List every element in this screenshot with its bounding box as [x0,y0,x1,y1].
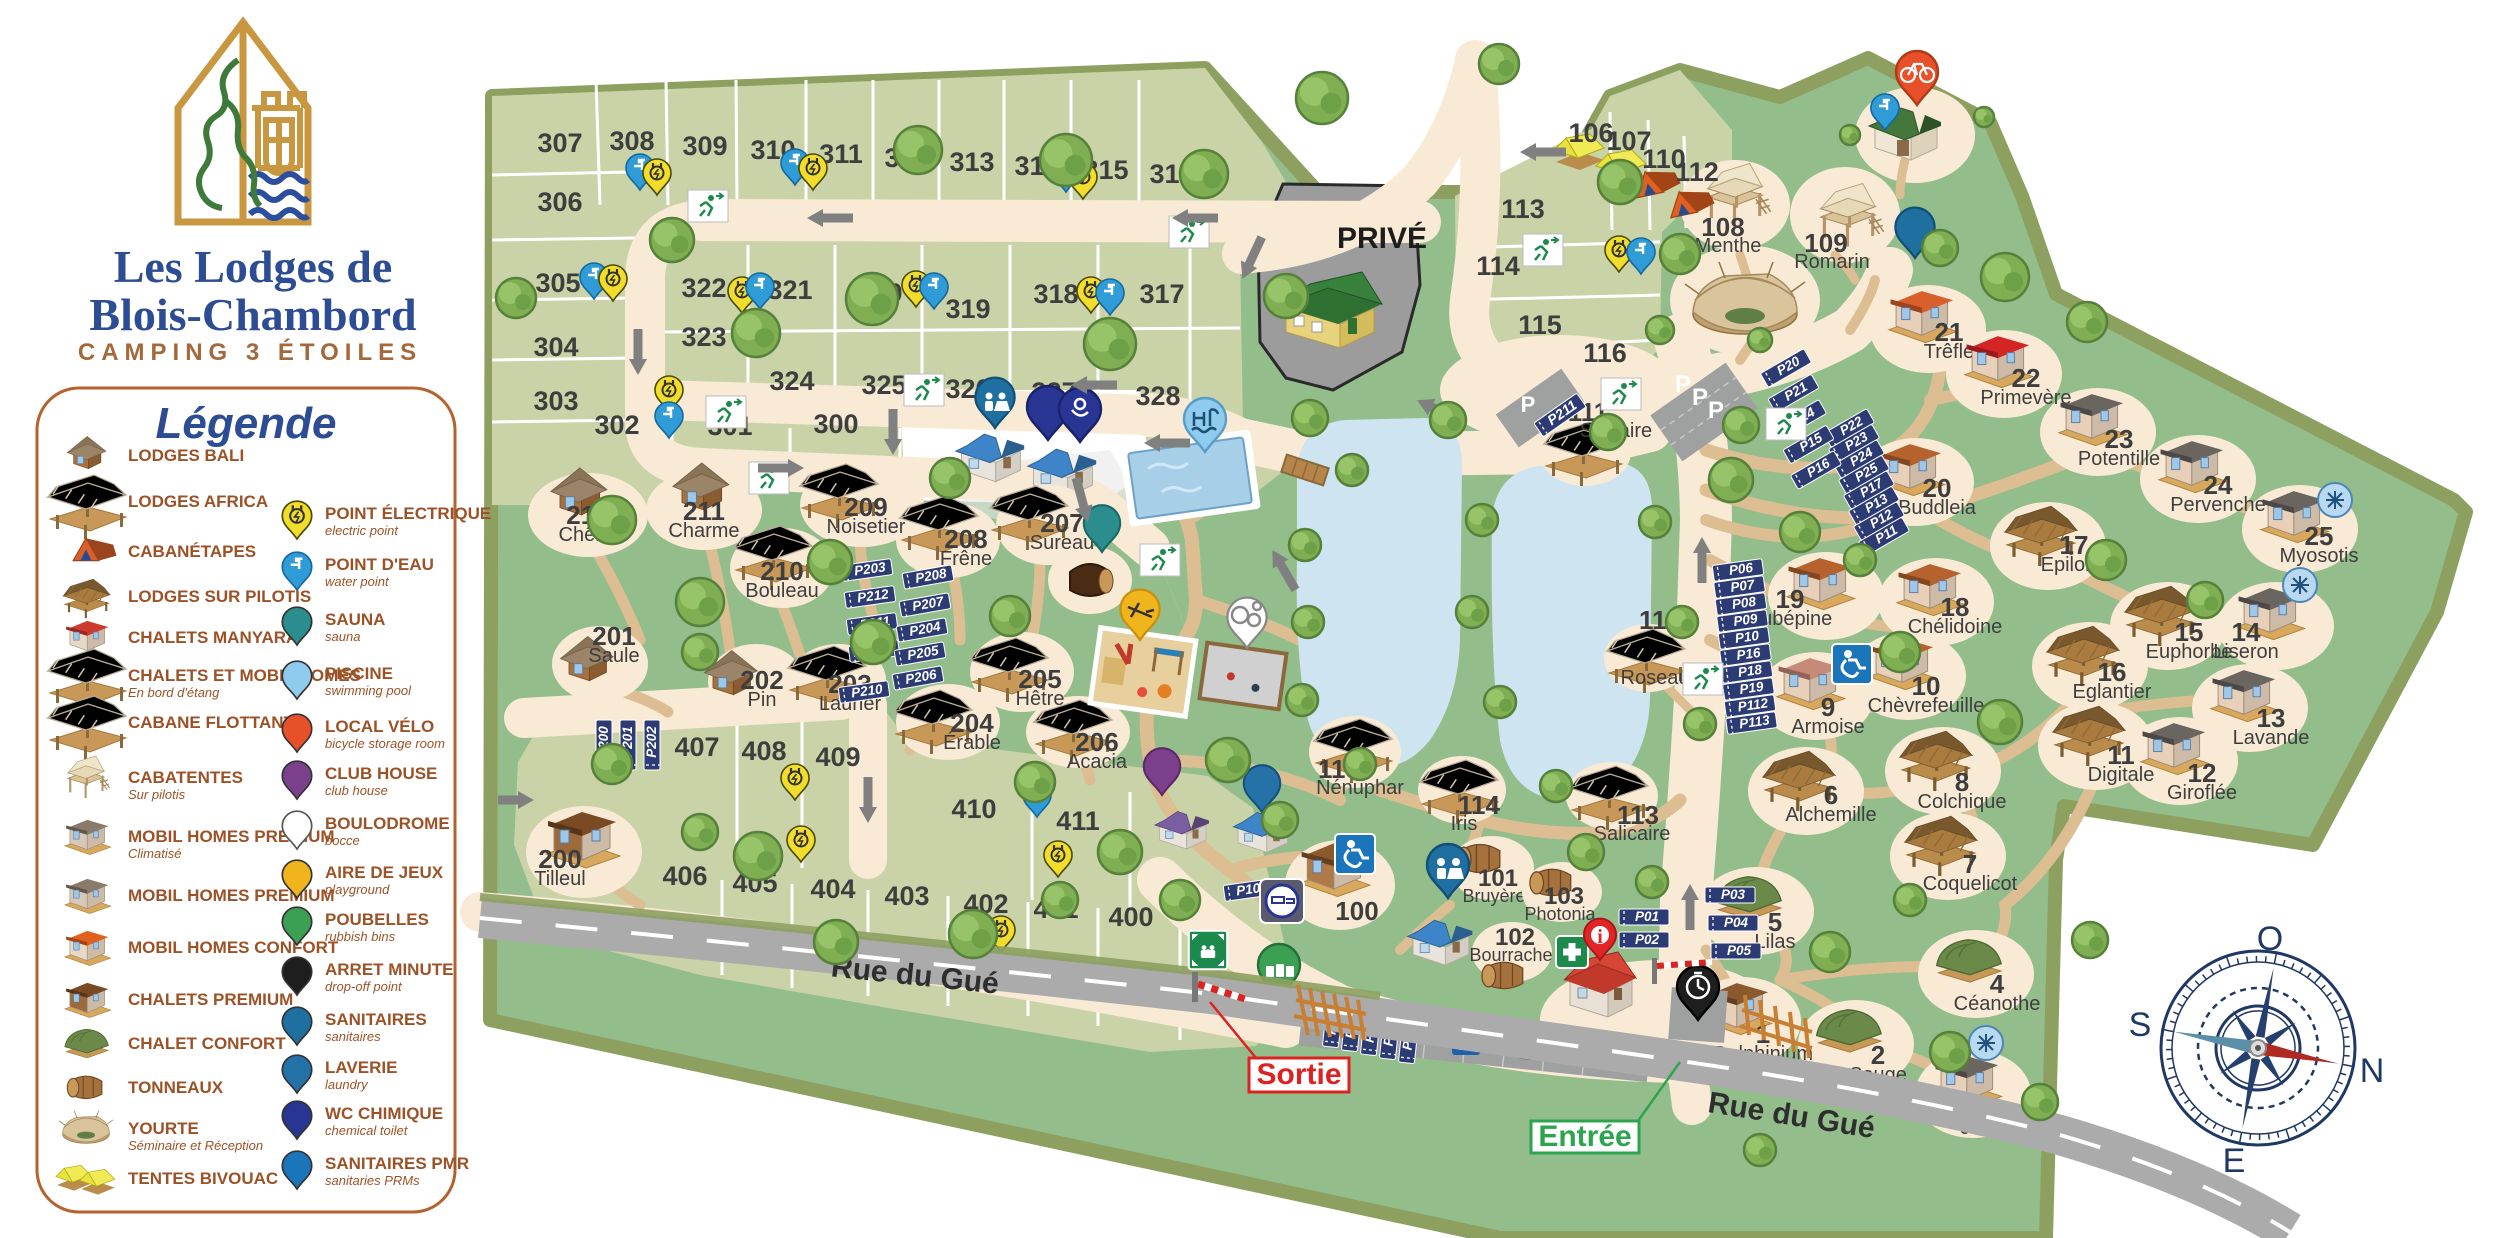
svg-text:LAVERIE: LAVERIE [325,1058,397,1077]
svg-text:CABATENTES: CABATENTES [128,768,243,787]
svg-text:Coquelicot: Coquelicot [1923,873,2018,895]
svg-text:PISCINE: PISCINE [325,664,393,683]
svg-text:309: 309 [682,131,727,161]
svg-text:Bruyère: Bruyère [1462,886,1525,906]
svg-text:Digitale: Digitale [2088,764,2155,786]
svg-text:Photonia: Photonia [1524,904,1596,924]
svg-text:chemical toilet: chemical toilet [325,1123,409,1138]
svg-text:114: 114 [1476,251,1520,281]
svg-text:302: 302 [594,410,639,440]
svg-text:CAMPING 3 ÉTOILES: CAMPING 3 ÉTOILES [78,338,422,366]
svg-text:bocce: bocce [325,833,360,848]
svg-text:Menthe: Menthe [1695,235,1762,257]
svg-text:POUBELLES: POUBELLES [325,910,429,929]
svg-text:BOULODROME: BOULODROME [325,814,450,833]
svg-text:WC CHIMIQUE: WC CHIMIQUE [325,1104,443,1123]
svg-text:CHALETS MANYARA: CHALETS MANYARA [128,628,298,647]
svg-text:LODGES AFRICA: LODGES AFRICA [128,492,268,511]
svg-text:Saule: Saule [588,645,639,667]
svg-text:115: 115 [1518,310,1562,340]
svg-text:P202: P202 [644,726,659,758]
svg-text:P05: P05 [1727,943,1752,958]
svg-text:308: 308 [609,126,654,156]
svg-text:324: 324 [769,366,814,396]
svg-text:Romarin: Romarin [1794,251,1870,273]
svg-text:sanitaries PRMs: sanitaries PRMs [325,1173,420,1188]
svg-text:SANITAIRES PMR: SANITAIRES PMR [325,1154,469,1173]
svg-text:Alchemille: Alchemille [1785,804,1876,826]
svg-text:Séminaire et Réception: Séminaire et Réception [128,1138,263,1153]
svg-text:AIRE DE JEUX: AIRE DE JEUX [325,863,444,882]
svg-text:Roseau: Roseau [1621,667,1690,689]
svg-text:P03: P03 [1721,887,1746,902]
svg-text:Blois-Chambord: Blois-Chambord [89,289,417,340]
svg-text:Salicaire: Salicaire [1594,823,1671,845]
svg-text:P: P [1675,371,1691,398]
svg-text:323: 323 [681,322,726,352]
svg-text:Bourrache: Bourrache [1469,945,1552,965]
svg-text:SAUNA: SAUNA [325,610,385,629]
svg-text:313: 313 [949,147,994,177]
svg-text:drop-off point: drop-off point [325,979,403,994]
svg-text:113: 113 [1501,194,1545,224]
svg-text:Chélidoine: Chélidoine [1908,616,2003,638]
svg-text:404: 404 [810,874,855,904]
svg-text:playground: playground [324,882,390,897]
svg-text:CABANÉTAPES: CABANÉTAPES [128,542,256,561]
svg-text:Sur pilotis: Sur pilotis [128,787,186,802]
svg-text:swimming pool: swimming pool [325,683,412,698]
svg-text:laundry: laundry [325,1077,369,1092]
svg-text:Céanothe: Céanothe [1954,993,2041,1015]
svg-text:POINT D'EAU: POINT D'EAU [325,555,434,574]
svg-text:rubbish bins: rubbish bins [325,929,396,944]
svg-text:P: P [1692,384,1708,411]
svg-text:306: 306 [537,187,582,217]
svg-text:electric point: electric point [325,523,399,538]
svg-text:Colchique: Colchique [1918,791,2007,813]
svg-text:411: 411 [1056,806,1100,836]
svg-text:sauna: sauna [325,629,360,644]
svg-text:304: 304 [533,332,578,362]
svg-text:Sureau: Sureau [1030,532,1095,554]
svg-text:E: E [2223,1142,2246,1180]
svg-text:bicycle storage room: bicycle storage room [325,736,445,751]
svg-text:MOBIL HOMES CONFORT: MOBIL HOMES CONFORT [128,938,339,957]
svg-text:S: S [2129,1006,2152,1044]
svg-text:Primevère: Primevère [1980,387,2071,409]
svg-text:POINT ÉLECTRIQUE: POINT ÉLECTRIQUE [325,504,491,523]
svg-text:CLUB HOUSE: CLUB HOUSE [325,764,437,783]
svg-text:Bouleau: Bouleau [745,580,818,602]
svg-text:307: 307 [537,128,582,158]
svg-text:Iris: Iris [1451,813,1478,835]
svg-text:Giroflée: Giroflée [2167,782,2237,804]
svg-text:LOCAL VÉLO: LOCAL VÉLO [325,717,434,736]
svg-text:319: 319 [945,294,990,324]
svg-text:TENTES BIVOUAC: TENTES BIVOUAC [128,1169,278,1188]
svg-text:400: 400 [1108,902,1153,932]
svg-text:407: 407 [674,732,719,762]
svg-text:PRIVÉ: PRIVÉ [1337,221,1427,255]
svg-text:P: P [1708,397,1724,424]
svg-text:Légende: Légende [156,399,337,448]
svg-text:Tilleul: Tilleul [534,868,586,890]
svg-text:303: 303 [533,386,578,416]
svg-text:Climatisé: Climatisé [128,846,181,861]
svg-text:112: 112 [1675,157,1719,187]
svg-text:O: O [2257,920,2283,958]
svg-text:100: 100 [1335,896,1378,926]
svg-text:Noisetier: Noisetier [827,516,906,538]
svg-text:Pin: Pin [748,689,777,711]
svg-text:Charme: Charme [668,520,739,542]
svg-text:318: 318 [1033,279,1078,309]
svg-text:300: 300 [813,409,858,439]
svg-text:408: 408 [741,736,786,766]
svg-text:P: P [1521,392,1536,417]
svg-text:Sortie: Sortie [1256,1058,1341,1091]
svg-text:Liseron: Liseron [2213,641,2279,663]
svg-text:Eglantier: Eglantier [2073,681,2152,703]
svg-text:SANITAIRES: SANITAIRES [325,1010,427,1029]
svg-text:sanitaires: sanitaires [325,1029,381,1044]
svg-text:Trêfle: Trêfle [1924,341,1974,363]
svg-text:club house: club house [325,783,388,798]
svg-text:Chèvrefeuille: Chèvrefeuille [1868,695,1985,717]
svg-text:409: 409 [815,742,860,772]
svg-text:410: 410 [951,794,996,824]
svg-text:328: 328 [1135,381,1180,411]
svg-text:Myosotis: Myosotis [2280,545,2359,567]
svg-text:325: 325 [861,370,906,400]
svg-text:Buddleia: Buddleia [1898,497,1977,519]
svg-text:317: 317 [1139,279,1184,309]
svg-text:Érable: Érable [943,731,1001,754]
svg-text:P04: P04 [1724,915,1749,930]
svg-text:Lavande: Lavande [2233,727,2310,749]
svg-text:322: 322 [681,273,726,303]
svg-text:YOURTE: YOURTE [128,1119,199,1138]
svg-text:403: 403 [884,881,929,911]
svg-text:Entrée: Entrée [1538,1120,1631,1153]
svg-text:TONNEAUX: TONNEAUX [128,1078,224,1097]
svg-text:406: 406 [662,861,707,891]
svg-text:Armoise: Armoise [1791,716,1864,738]
svg-text:Acacia: Acacia [1067,751,1128,773]
svg-text:ARRET MINUTE: ARRET MINUTE [325,960,453,979]
svg-text:P01: P01 [1635,909,1659,924]
svg-text:N: N [2360,1052,2385,1090]
svg-text:Potentille: Potentille [2078,448,2160,470]
svg-text:LODGES BALI: LODGES BALI [128,446,244,465]
svg-text:CHALET CONFORT: CHALET CONFORT [128,1034,286,1053]
svg-text:CHALETS PREMIUM: CHALETS PREMIUM [128,990,293,1009]
svg-text:water point: water point [325,574,390,589]
svg-text:CABANE FLOTTANTE: CABANE FLOTTANTE [128,713,305,732]
svg-text:En bord d'étang: En bord d'étang [128,685,220,700]
svg-text:116: 116 [1583,338,1627,368]
svg-text:i: i [1597,926,1603,948]
svg-text:P02: P02 [1635,932,1660,947]
svg-text:LODGES SUR PILOTIS: LODGES SUR PILOTIS [128,587,311,606]
svg-text:Pervenche: Pervenche [2170,494,2266,516]
svg-text:305: 305 [535,268,580,298]
svg-text:Les Lodges de: Les Lodges de [114,241,393,292]
